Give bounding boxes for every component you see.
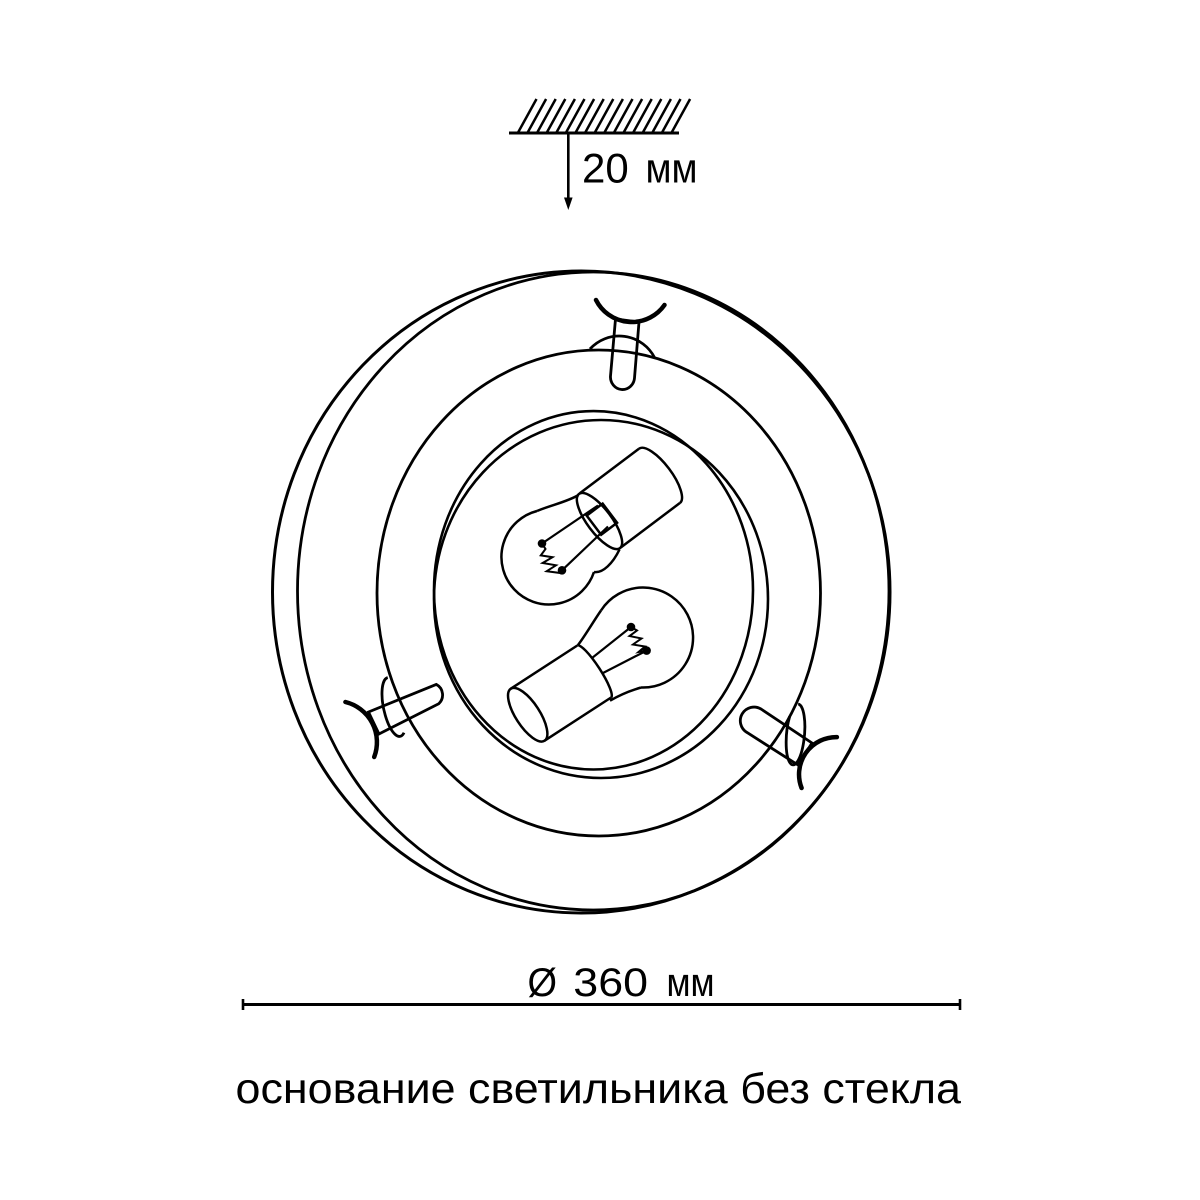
svg-text:Ø: Ø <box>528 961 558 1005</box>
svg-text:мм: мм <box>667 961 715 1005</box>
svg-text:20: 20 <box>582 145 629 192</box>
svg-text:основание светильника без стек: основание светильника без стекла <box>236 1065 962 1112</box>
svg-text:360: 360 <box>573 961 648 1005</box>
svg-text:мм: мм <box>646 145 698 192</box>
